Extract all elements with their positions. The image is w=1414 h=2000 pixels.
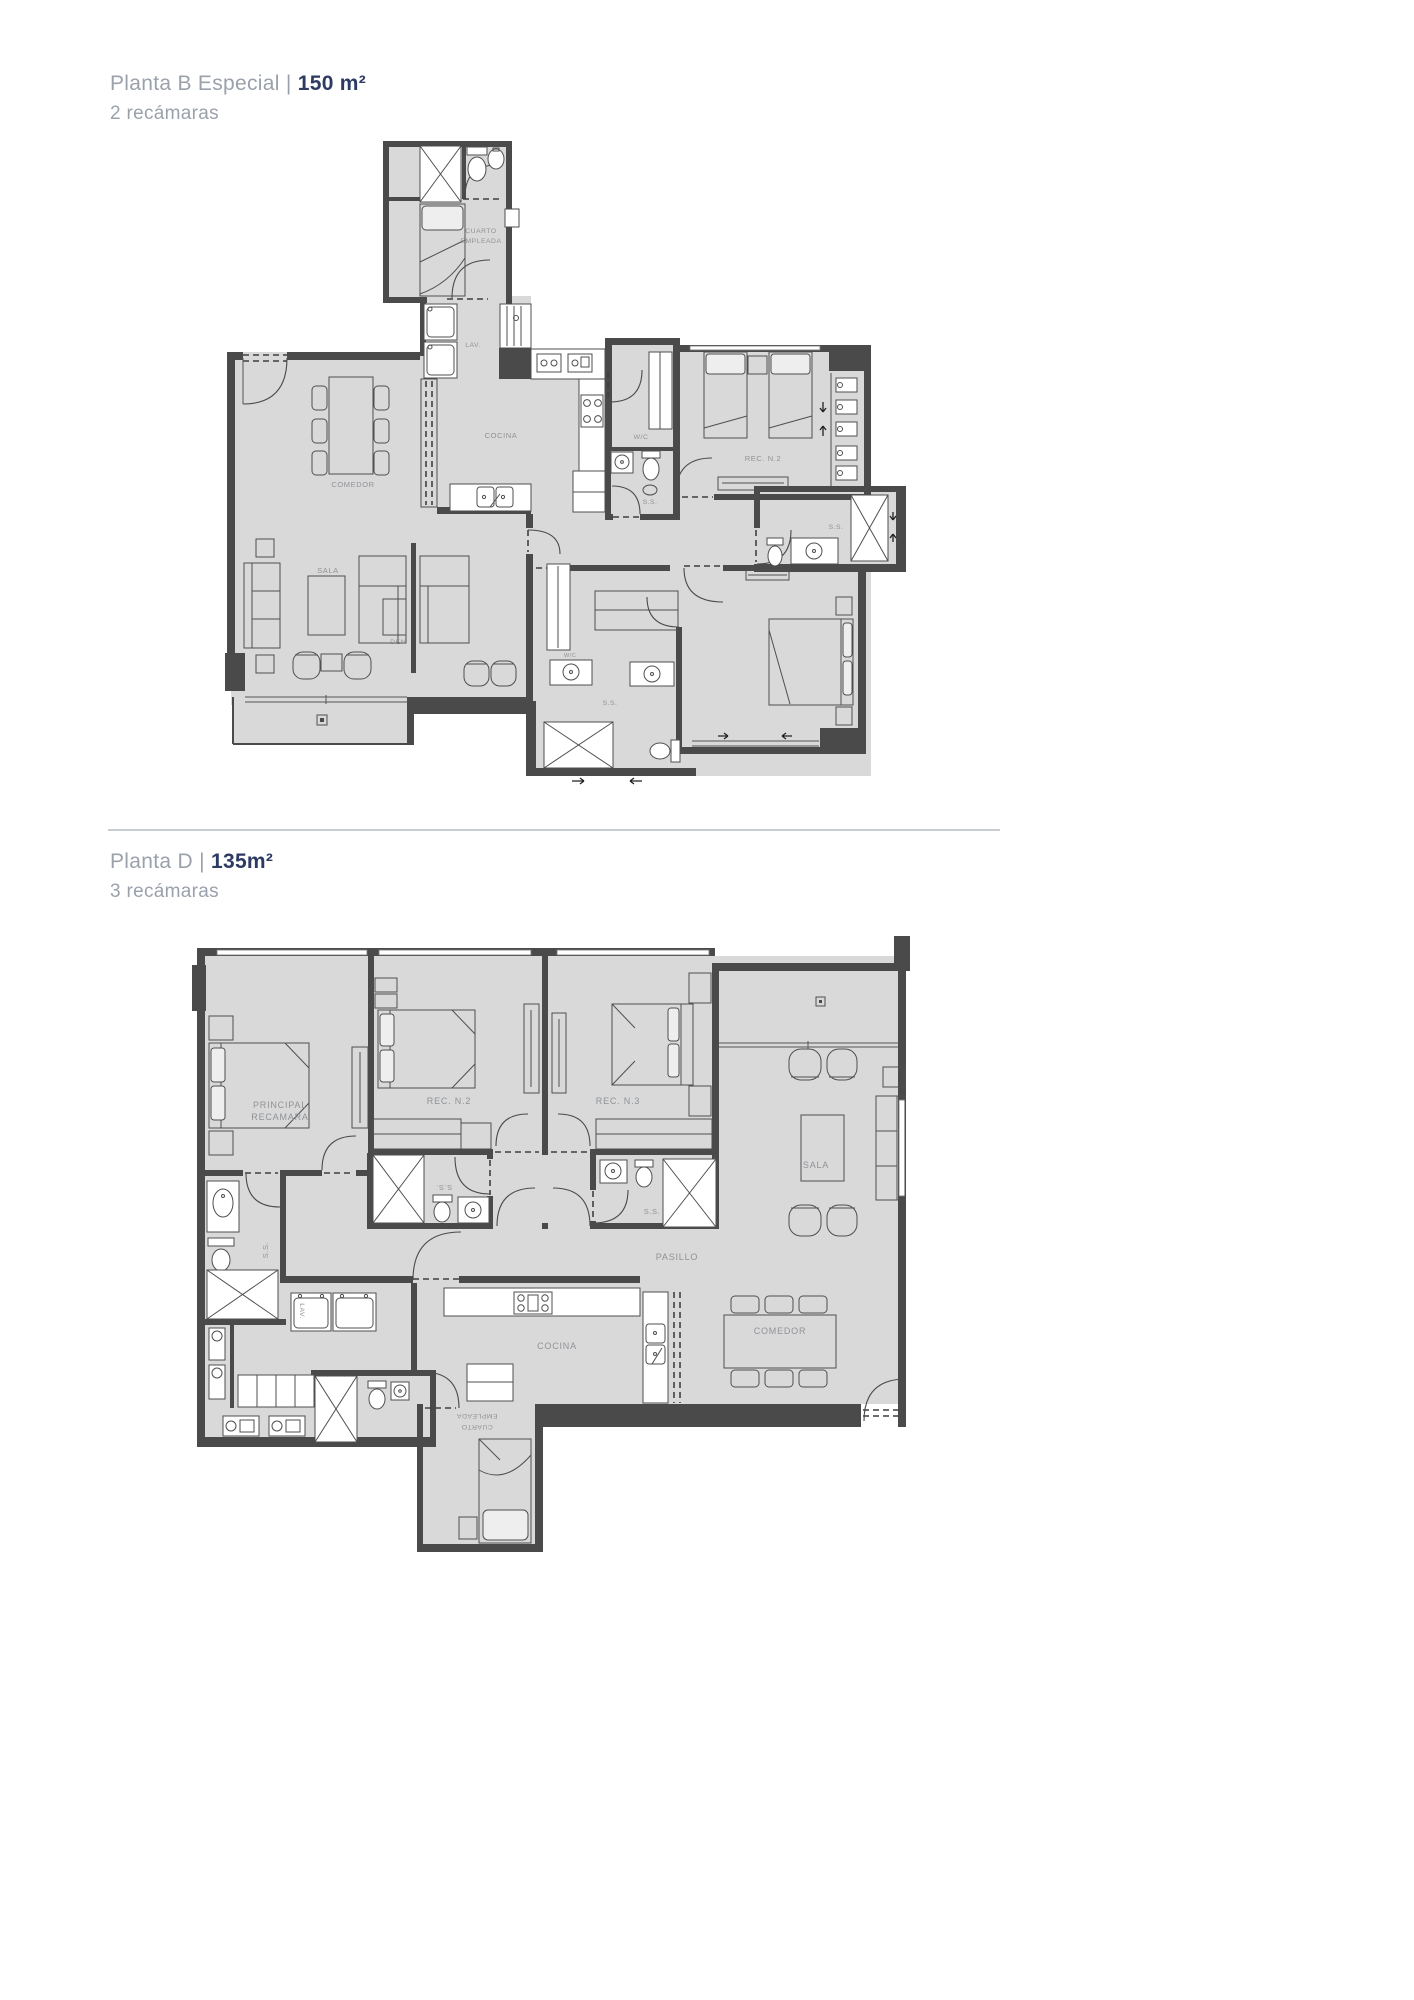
svg-text:EMPLEADA: EMPLEADA [456,1412,497,1419]
sink [458,1197,489,1223]
toilet [767,538,783,566]
shaft [505,209,519,227]
laundry-sink [291,1293,331,1331]
room-label-principal: PRINCIPAL [253,1100,307,1110]
shower [663,1159,716,1227]
room-label-cocina: COCINA [485,431,518,440]
stove [581,395,603,427]
water-heater [209,1365,225,1399]
stove [514,1292,552,1314]
toilet [635,1160,653,1187]
room-label-ss-rec2: S.S. [436,1183,453,1192]
room-divider [411,543,416,673]
fridge [467,1364,513,1401]
toilet [368,1381,386,1409]
laundry-shelf [500,304,531,348]
floor-plan-planta-d: PRINCIPAL RECAMARA REC. N.2 REC. N.3 SAL… [192,936,910,1552]
shower [207,1270,278,1319]
water-heater [209,1328,225,1360]
room-label-sala: SALA [803,1160,829,1170]
vanity [791,538,838,564]
room-label-comedor: COMEDOR [331,480,374,489]
vanity [207,1181,239,1232]
room-label-cocina: COCINA [537,1341,577,1351]
room-label-ss2: S.S. [829,524,844,531]
room-label-lav: LAV. [465,342,481,349]
room-label-cuarto-empleada-2: EMPLEADA [460,238,501,245]
room-label-ss3: S.S. [603,700,618,707]
svg-text:CUARTO: CUARTO [461,1423,492,1430]
toilet [642,451,660,480]
room-label-rec-n3: REC. N.3 [596,1096,640,1106]
shower [544,722,613,768]
utility-counter [238,1375,314,1407]
room-label-rec-n2: REC. N.2 [427,1096,471,1106]
kitchen-sink [450,484,531,511]
wc-cabinet [649,352,672,429]
room-label-den: DEN [390,639,406,646]
wardrobe [547,564,570,650]
washer [223,1416,259,1436]
shower [851,495,888,561]
room-label-principal-2: RECAMARA [251,1112,308,1122]
shower [373,1155,424,1223]
laundry-sink [333,1293,376,1331]
room-label-ss-principal: S.S. [261,1242,270,1259]
room-label-ss1: S.S. [643,499,658,506]
shower [315,1376,357,1442]
sink [600,1160,627,1183]
sink [391,1382,409,1400]
p1-entry-arrows [572,778,642,784]
room-label-sala: SALA [317,566,339,575]
dryer [269,1416,305,1436]
vanity [550,660,592,685]
room-label-ss-rec3: S.S. [644,1207,661,1216]
floor-plan-planta-b: CUARTO EMPLEADA LAV. COCINA COMEDOR W/C … [225,141,906,784]
shower [420,146,461,202]
sink [488,148,504,169]
room-label-comedor: COMEDOR [754,1326,807,1336]
room-label-lav: LAV. [298,1303,305,1319]
vanity [630,662,674,686]
room-label-wc-small: W/C [564,653,576,659]
room-label-pasillo: PASILLO [656,1252,698,1262]
fridge [573,471,605,512]
floor-plans-canvas: CUARTO EMPLEADA LAV. COCINA COMEDOR W/C … [0,0,1414,2000]
room-label-rec-n2: REC. N.2 [745,454,781,463]
toilet [467,147,487,181]
room-label-wc: W/C [634,434,649,441]
sink [611,452,633,473]
brochure-page: Planta B Especial | 150 m² 2 recámaras P… [0,0,1414,2000]
room-label-cuarto-empleada: CUARTO [465,228,496,235]
island-sink [643,1292,668,1403]
